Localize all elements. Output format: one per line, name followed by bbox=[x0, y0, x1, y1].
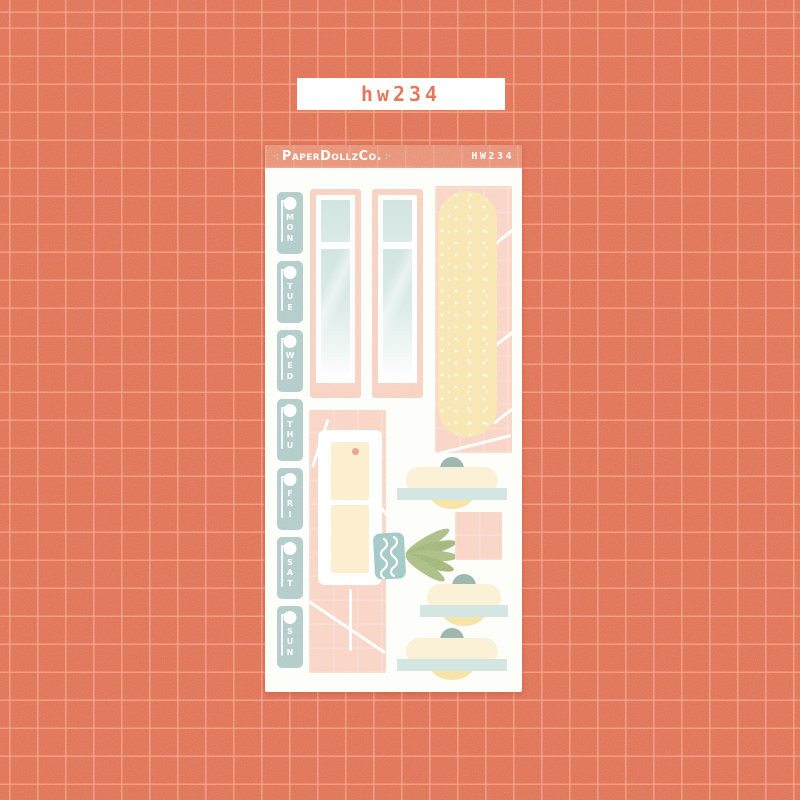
day-sticker-mon: MON bbox=[277, 192, 303, 254]
window-sash-left bbox=[310, 189, 361, 398]
cloche-sticker-bottom bbox=[397, 628, 507, 680]
sheet-sku: HW234 bbox=[471, 151, 514, 162]
day-label: SAT bbox=[286, 558, 295, 589]
cabinet-door-upper bbox=[331, 442, 369, 500]
day-label: MON bbox=[286, 213, 295, 244]
cloche-sticker-top bbox=[397, 457, 507, 511]
window-pane-top bbox=[321, 200, 350, 242]
tile-line bbox=[309, 600, 386, 654]
day-dot-icon bbox=[284, 266, 297, 279]
day-dot-icon bbox=[284, 473, 297, 486]
brand-logo: ·: PaperDollzCo. :· bbox=[273, 149, 391, 164]
day-sticker-sat: SAT bbox=[277, 537, 303, 599]
speckled-capsule-icon bbox=[438, 191, 497, 437]
plant-pot-icon bbox=[373, 532, 406, 580]
brand-name: PaperDollzCo. bbox=[282, 149, 382, 164]
shelf-bar-icon bbox=[397, 659, 507, 671]
product-photo: hw234 ·: PaperDollzCo. :· HW234 MON TUE … bbox=[0, 0, 800, 800]
sku-label-box: hw234 bbox=[297, 78, 505, 110]
cloche-sticker-middle bbox=[420, 574, 508, 629]
window-frame bbox=[378, 195, 417, 383]
day-sticker-wed: WED bbox=[277, 330, 303, 392]
shelf-bar-icon bbox=[420, 605, 508, 617]
day-label: THU bbox=[286, 420, 295, 451]
tile-line bbox=[439, 434, 512, 453]
day-sticker-tue: TUE bbox=[277, 261, 303, 323]
sticker-sheet: ·: PaperDollzCo. :· HW234 MON TUE WED TH… bbox=[265, 145, 522, 692]
day-sticker-sun: SUN bbox=[277, 606, 303, 668]
window-pane-bottom bbox=[321, 249, 350, 378]
day-label: SUN bbox=[286, 627, 295, 658]
day-label: WED bbox=[286, 351, 295, 382]
day-dot-icon bbox=[284, 197, 297, 210]
day-label: TUE bbox=[286, 282, 295, 313]
day-label: FRI bbox=[286, 489, 295, 520]
day-sticker-thu: THU bbox=[277, 399, 303, 461]
day-dot-icon bbox=[284, 542, 297, 555]
window-pane-top bbox=[383, 200, 412, 242]
sparkle-icon: :· bbox=[385, 152, 391, 162]
window-pane-bottom bbox=[383, 249, 412, 378]
capsule-sticker bbox=[435, 186, 512, 453]
cabinet-door-lower bbox=[331, 505, 369, 573]
window-sash-right bbox=[372, 189, 423, 398]
tile-line bbox=[349, 589, 352, 651]
day-dot-icon bbox=[284, 404, 297, 417]
tile-square-sticker bbox=[455, 512, 502, 560]
cabinet-knob-icon bbox=[352, 448, 359, 455]
day-sticker-fri: FRI bbox=[277, 468, 303, 530]
shelf-bar-icon bbox=[397, 488, 507, 500]
sparkle-icon: ·: bbox=[273, 152, 279, 162]
sku-label-text: hw234 bbox=[361, 82, 441, 106]
sheet-header: ·: PaperDollzCo. :· HW234 bbox=[265, 145, 522, 168]
day-dot-icon bbox=[284, 611, 297, 624]
window-sticker bbox=[310, 189, 423, 398]
day-dot-icon bbox=[284, 335, 297, 348]
window-frame bbox=[316, 195, 355, 383]
